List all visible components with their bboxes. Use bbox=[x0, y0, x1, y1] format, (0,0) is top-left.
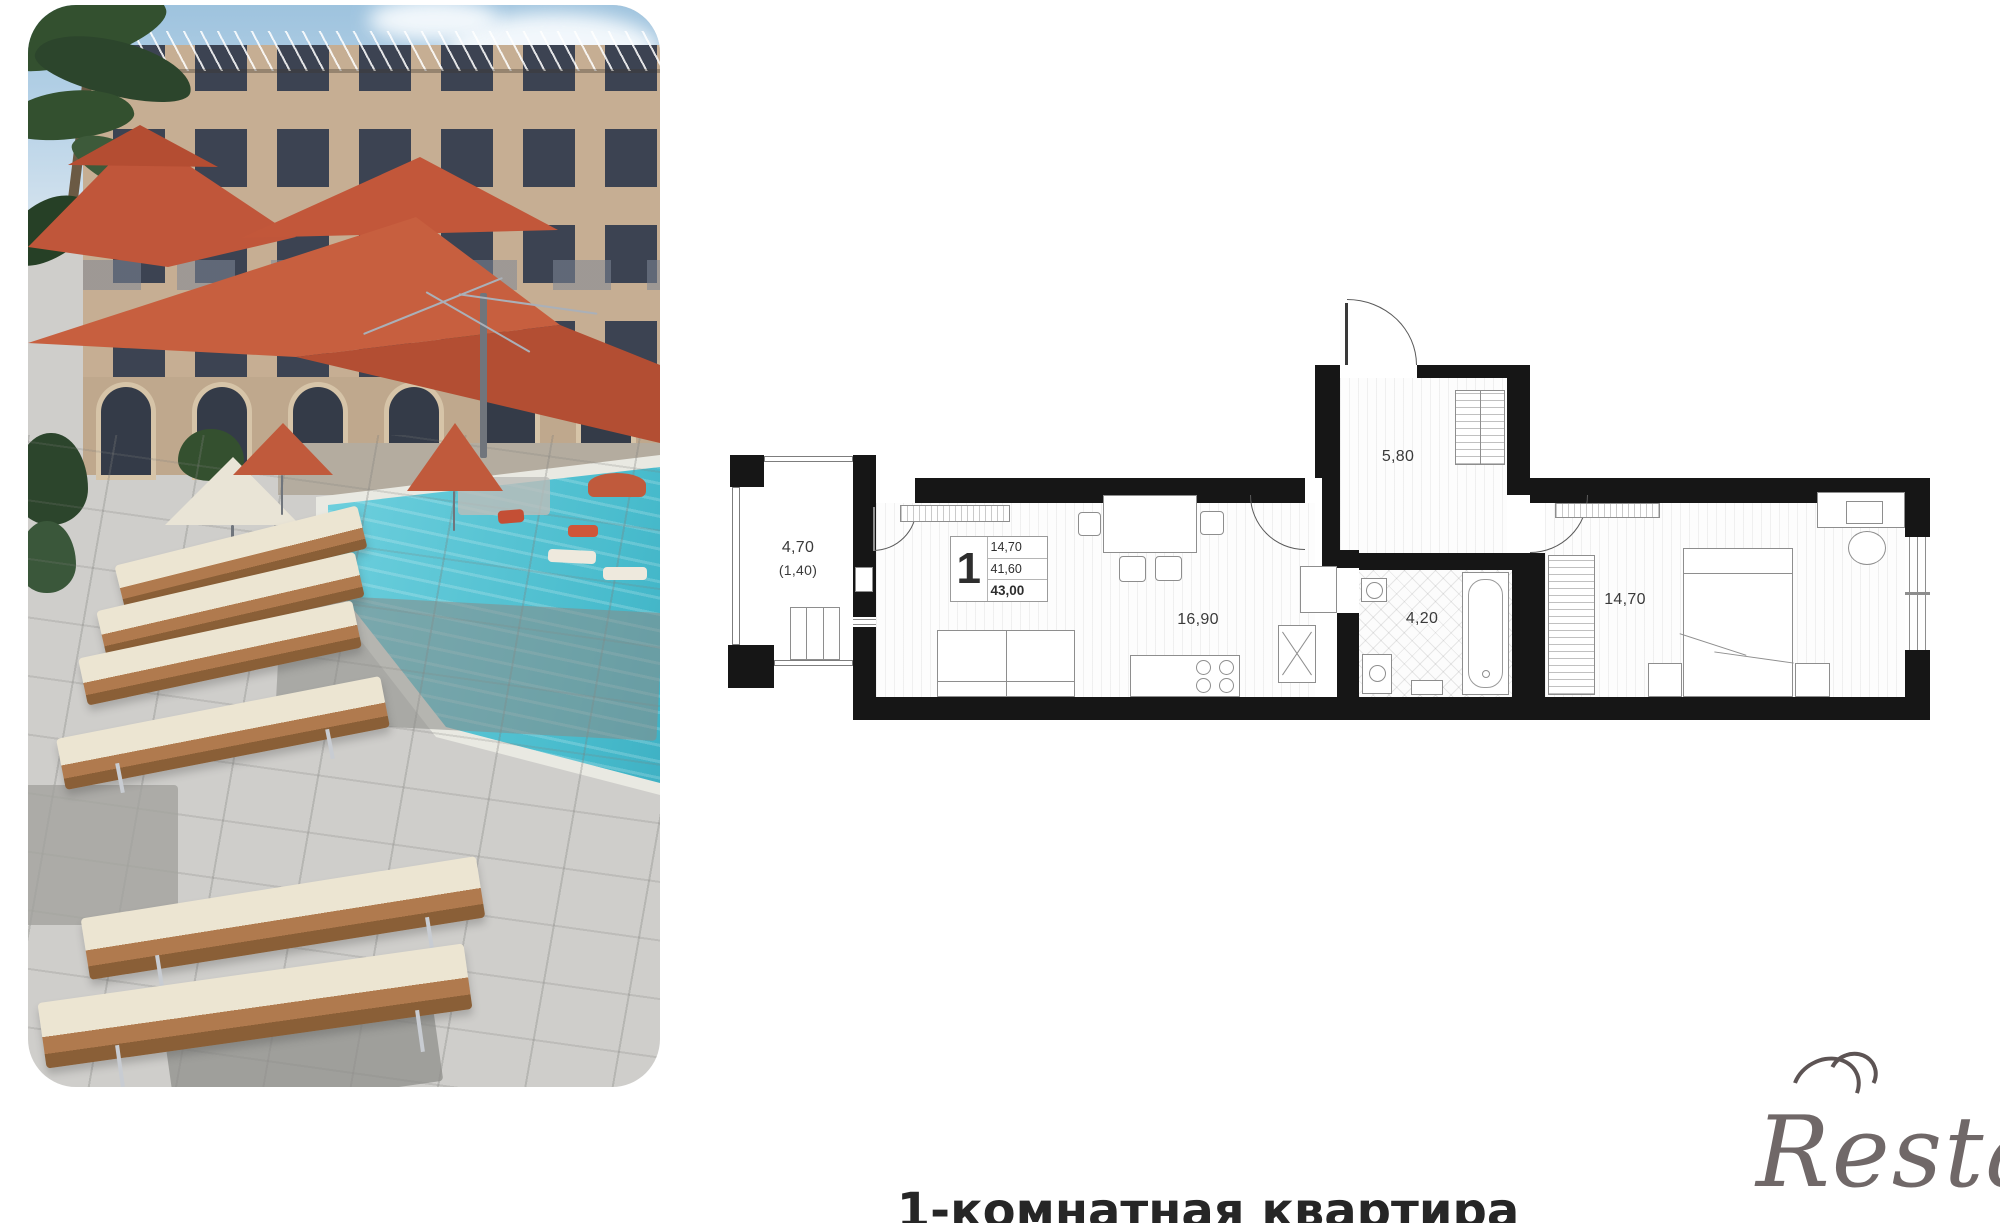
wall bbox=[1507, 365, 1530, 478]
bathtub-drain bbox=[1482, 670, 1490, 678]
wardrobe-divider bbox=[1480, 391, 1481, 464]
room-label-bedroom: 14,70 bbox=[1604, 591, 1646, 609]
umbrella-pole bbox=[281, 475, 283, 515]
desk-chair bbox=[1848, 531, 1886, 565]
apartment-info-box: 1 14,70 41,60 43,00 bbox=[950, 536, 1048, 602]
wall bbox=[1905, 478, 1930, 537]
stove-burner bbox=[1196, 678, 1211, 693]
chair bbox=[1155, 556, 1182, 581]
umbrella-pole bbox=[453, 491, 455, 531]
hall-wardrobe bbox=[1455, 390, 1505, 465]
entry-door-arc bbox=[1347, 299, 1417, 365]
wall bbox=[1507, 478, 1530, 495]
room-label-balcony-reduced: (1,40) bbox=[779, 562, 817, 578]
blanket-fold bbox=[1680, 633, 1747, 656]
watermark-logo: Restate bbox=[1756, 1096, 2000, 1210]
window-transom bbox=[1905, 592, 1930, 595]
bathroom-door-leaf bbox=[1300, 566, 1337, 613]
courtyard-pool-photo bbox=[28, 5, 660, 1087]
desk bbox=[1817, 492, 1905, 528]
bathroom-sink bbox=[1361, 578, 1387, 602]
wall bbox=[1337, 613, 1359, 697]
floor-plan: 4,70 (1,40) bbox=[728, 230, 1938, 730]
umbrella-pole bbox=[480, 293, 487, 458]
radiator bbox=[855, 567, 873, 592]
toilet-tank bbox=[1411, 680, 1443, 695]
room-label-kitchen-living: 16,90 bbox=[1177, 611, 1219, 629]
stove-burner bbox=[1219, 678, 1234, 693]
wall bbox=[853, 697, 1930, 720]
sofa bbox=[937, 630, 1075, 697]
ac-unit-line bbox=[806, 608, 807, 659]
nightstand bbox=[1648, 663, 1682, 697]
wall bbox=[853, 455, 876, 507]
chair bbox=[1119, 556, 1146, 582]
balcony-pillar bbox=[728, 645, 774, 688]
balcony-rail bbox=[732, 487, 740, 645]
listing-image: 4,70 (1,40) bbox=[0, 0, 2000, 1223]
listing-caption: 1-комнатная квартира bbox=[897, 1183, 1519, 1223]
wall bbox=[1512, 553, 1545, 697]
areas-column: 14,70 41,60 43,00 bbox=[987, 537, 1047, 601]
far-red-umbrella bbox=[588, 473, 646, 497]
tv-unit bbox=[900, 505, 1010, 522]
room-label-hallway: 5,80 bbox=[1382, 448, 1414, 466]
bedroom-window bbox=[1905, 537, 1930, 650]
bedroom-wardrobe bbox=[1548, 555, 1595, 695]
wall bbox=[1359, 553, 1512, 570]
balcony-pillar bbox=[730, 455, 764, 487]
chair bbox=[1078, 512, 1101, 536]
kitchen-sink-unit bbox=[1278, 625, 1316, 683]
ac-unit-line bbox=[823, 608, 824, 659]
wall-vent bbox=[853, 617, 876, 627]
ac-unit bbox=[790, 607, 840, 660]
pillow-line bbox=[1684, 573, 1792, 574]
area-without-balcony-value: 41,60 bbox=[988, 558, 1047, 581]
chair bbox=[1200, 511, 1224, 535]
sink-bowl bbox=[1366, 582, 1383, 599]
washer-door bbox=[1369, 665, 1386, 682]
dining-table bbox=[1103, 495, 1197, 553]
room-label-balcony: 4,70 bbox=[782, 539, 814, 557]
balcony-door-leaf bbox=[873, 507, 875, 551]
balcony-rail bbox=[764, 456, 853, 462]
living-area-value: 14,70 bbox=[988, 537, 1047, 558]
stove-burner bbox=[1196, 660, 1211, 675]
red-sun-chair bbox=[497, 509, 524, 524]
laptop bbox=[1846, 501, 1883, 524]
rooms-count: 1 bbox=[951, 537, 987, 601]
bathtub bbox=[1462, 572, 1509, 695]
vent-line bbox=[853, 624, 876, 625]
washing-machine bbox=[1362, 654, 1392, 694]
red-sun-chair bbox=[568, 525, 598, 537]
vent-line bbox=[853, 619, 876, 620]
white-lounger bbox=[603, 567, 647, 580]
balcony-rail bbox=[774, 660, 853, 666]
bedroom-tv-shelf bbox=[1555, 503, 1660, 518]
wall bbox=[1315, 365, 1340, 478]
blanket-fold bbox=[1714, 651, 1793, 663]
room-label-bathroom: 4,20 bbox=[1406, 610, 1438, 628]
wall bbox=[1337, 550, 1359, 568]
bed bbox=[1683, 548, 1793, 697]
dark-paver bbox=[28, 785, 178, 925]
stove-burner bbox=[1219, 660, 1234, 675]
sofa-divider bbox=[1006, 631, 1007, 696]
white-lounger bbox=[548, 549, 597, 564]
nightstand bbox=[1795, 663, 1830, 697]
total-area-value: 43,00 bbox=[988, 580, 1047, 601]
